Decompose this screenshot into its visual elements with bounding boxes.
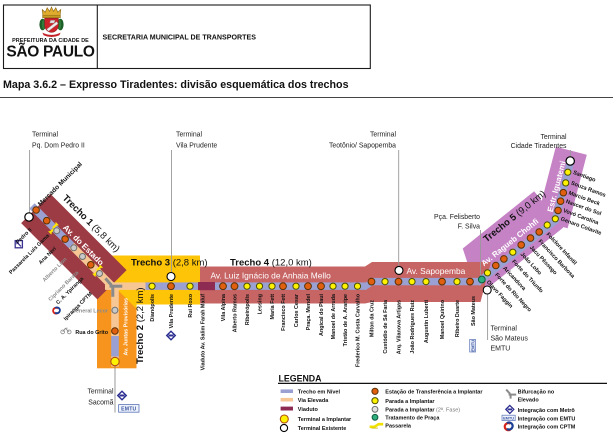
svg-text:General Lecor: General Lecor [72, 309, 109, 315]
svg-text:Vila Prudente: Vila Prudente [176, 143, 217, 150]
svg-text:Terminal: Terminal [540, 134, 567, 141]
svg-text:Angical do Piaui: Angical do Piaui [319, 294, 325, 336]
svg-text:Frederico M. Costa Carvalho: Frederico M. Costa Carvalho [356, 293, 362, 367]
svg-text:Manoel de Arruda: Manoel de Arruda [331, 293, 337, 339]
svg-text:Cidade Tiradentes: Cidade Tiradentes [511, 143, 567, 150]
svg-text:Manoel Quirino: Manoel Quirino [440, 299, 446, 339]
svg-text:Teotônio/ Sapopemba: Teotônio/ Sapopemba [329, 143, 396, 150]
svg-text:Trecho 2 (2,2 km): Trecho 2 (2,2 km) [135, 287, 146, 364]
svg-text:Carlos Cesar: Carlos Cesar [294, 293, 300, 327]
svg-text:Terminal: Terminal [87, 389, 114, 396]
svg-text:Dianópolis: Dianópolis [150, 294, 156, 322]
svg-text:João Rodrigues Ruiz: João Rodrigues Ruiz [410, 300, 416, 354]
svg-text:EMTU: EMTU [121, 407, 136, 413]
svg-text:Av. Juntas Provisórias: Av. Juntas Provisórias [124, 298, 130, 356]
svg-text:Parada a Implantar: Parada a Implantar [385, 399, 435, 405]
svg-text:Mapa 3.6.2 – Expresso Tiradent: Mapa 3.6.2 – Expresso Tiradentes: divisã… [3, 79, 349, 91]
svg-text:Lessing: Lessing [258, 294, 264, 314]
svg-text:EMTU: EMTU [503, 416, 514, 421]
svg-text:Vila Alpina: Vila Alpina [221, 293, 227, 321]
svg-text:Terminal: Terminal [32, 132, 59, 139]
svg-text:Sacomã: Sacomã [88, 400, 113, 407]
svg-text:Estação de Transferência a Imp: Estação de Transferência a Implantar [385, 390, 483, 396]
svg-text:Trecho 4 (12,0 km): Trecho 4 (12,0 km) [230, 257, 312, 268]
svg-text:Rua do Grito: Rua do Grito [75, 330, 108, 336]
svg-text:Francisco Fett: Francisco Fett [281, 294, 287, 331]
svg-text:SECRETARIA MUNICIPAL DE TRANSP: SECRETARIA MUNICIPAL DE TRANSPORTES [103, 34, 257, 42]
svg-text:Rui Roxo: Rui Roxo [188, 293, 194, 317]
svg-text:Terminal a Implantar: Terminal a Implantar [298, 417, 352, 423]
svg-text:Augustin Luberti: Augustin Luberti [424, 300, 430, 344]
svg-text:Integração com Metrô: Integração com Metrô [518, 408, 576, 414]
svg-text:Integração com CPTM: Integração com CPTM [518, 424, 576, 430]
svg-text:Custódio de Sá Faria: Custódio de Sá Faria [383, 299, 389, 354]
svg-text:Bifurcação no: Bifurcação no [518, 390, 555, 396]
svg-text:Integração com EMTU: Integração com EMTU [518, 416, 576, 422]
svg-text:Tratamento de Praça: Tratamento de Praça [385, 415, 440, 421]
svg-text:São Mateus: São Mateus [471, 296, 477, 326]
svg-text:Terminal Existente: Terminal Existente [298, 426, 347, 432]
svg-text:São Mateus: São Mateus [491, 336, 529, 343]
svg-text:Ribeirópolis: Ribeirópolis [245, 294, 251, 325]
svg-text:Alberto Ramos: Alberto Ramos [233, 294, 239, 332]
svg-text:Passarela: Passarela [385, 424, 412, 430]
svg-text:Trecho 3 (2,8 km): Trecho 3 (2,8 km) [131, 257, 208, 268]
svg-text:Viaduto Av. Salim Farah Maluf: Viaduto Av. Salim Farah Maluf [201, 294, 207, 371]
svg-text:Terminal: Terminal [491, 326, 518, 333]
svg-text:Parada a Implantar (2ª. Fase): Parada a Implantar (2ª. Fase) [385, 406, 460, 413]
svg-text:Pq. Dom Pedro II: Pq. Dom Pedro II [32, 143, 85, 150]
svg-text:Maria Fett: Maria Fett [270, 294, 276, 320]
svg-text:F. Silva: F. Silva [458, 224, 480, 231]
svg-text:LEGENDA: LEGENDA [279, 374, 323, 384]
svg-text:Trecho em Nível: Trecho em Nível [298, 389, 341, 395]
svg-text:Av. Sapopemba: Av. Sapopemba [407, 266, 466, 276]
svg-text:SÃO PAULO: SÃO PAULO [6, 42, 95, 60]
svg-text:Praça. Mendel: Praça. Mendel [306, 294, 312, 331]
svg-text:Via Elevada: Via Elevada [298, 398, 329, 404]
svg-text:Tristão de A. Araripe: Tristão de A. Araripe [343, 294, 349, 346]
svg-text:Terminal: Terminal [176, 132, 203, 139]
svg-text:Pça. Felisberto: Pça. Felisberto [434, 214, 480, 221]
svg-text:Elevado: Elevado [518, 397, 540, 403]
svg-text:Ribeiro Duarte: Ribeiro Duarte [455, 300, 461, 337]
svg-text:Av. Luiz Ignácio de Anhaia Mel: Av. Luiz Ignácio de Anhaia Mello [211, 271, 332, 281]
svg-text:Milton da Cruz: Milton da Cruz [370, 300, 376, 337]
svg-text:EMTU: EMTU [491, 346, 511, 353]
svg-text:EMTU: EMTU [470, 340, 475, 352]
svg-text:Vila Prudente: Vila Prudente [169, 294, 175, 328]
svg-text:Arq. Vilanova Artigas: Arq. Vilanova Artigas [397, 300, 403, 354]
svg-text:Terminal: Terminal [370, 132, 397, 139]
svg-text:Viaduto: Viaduto [298, 407, 319, 413]
